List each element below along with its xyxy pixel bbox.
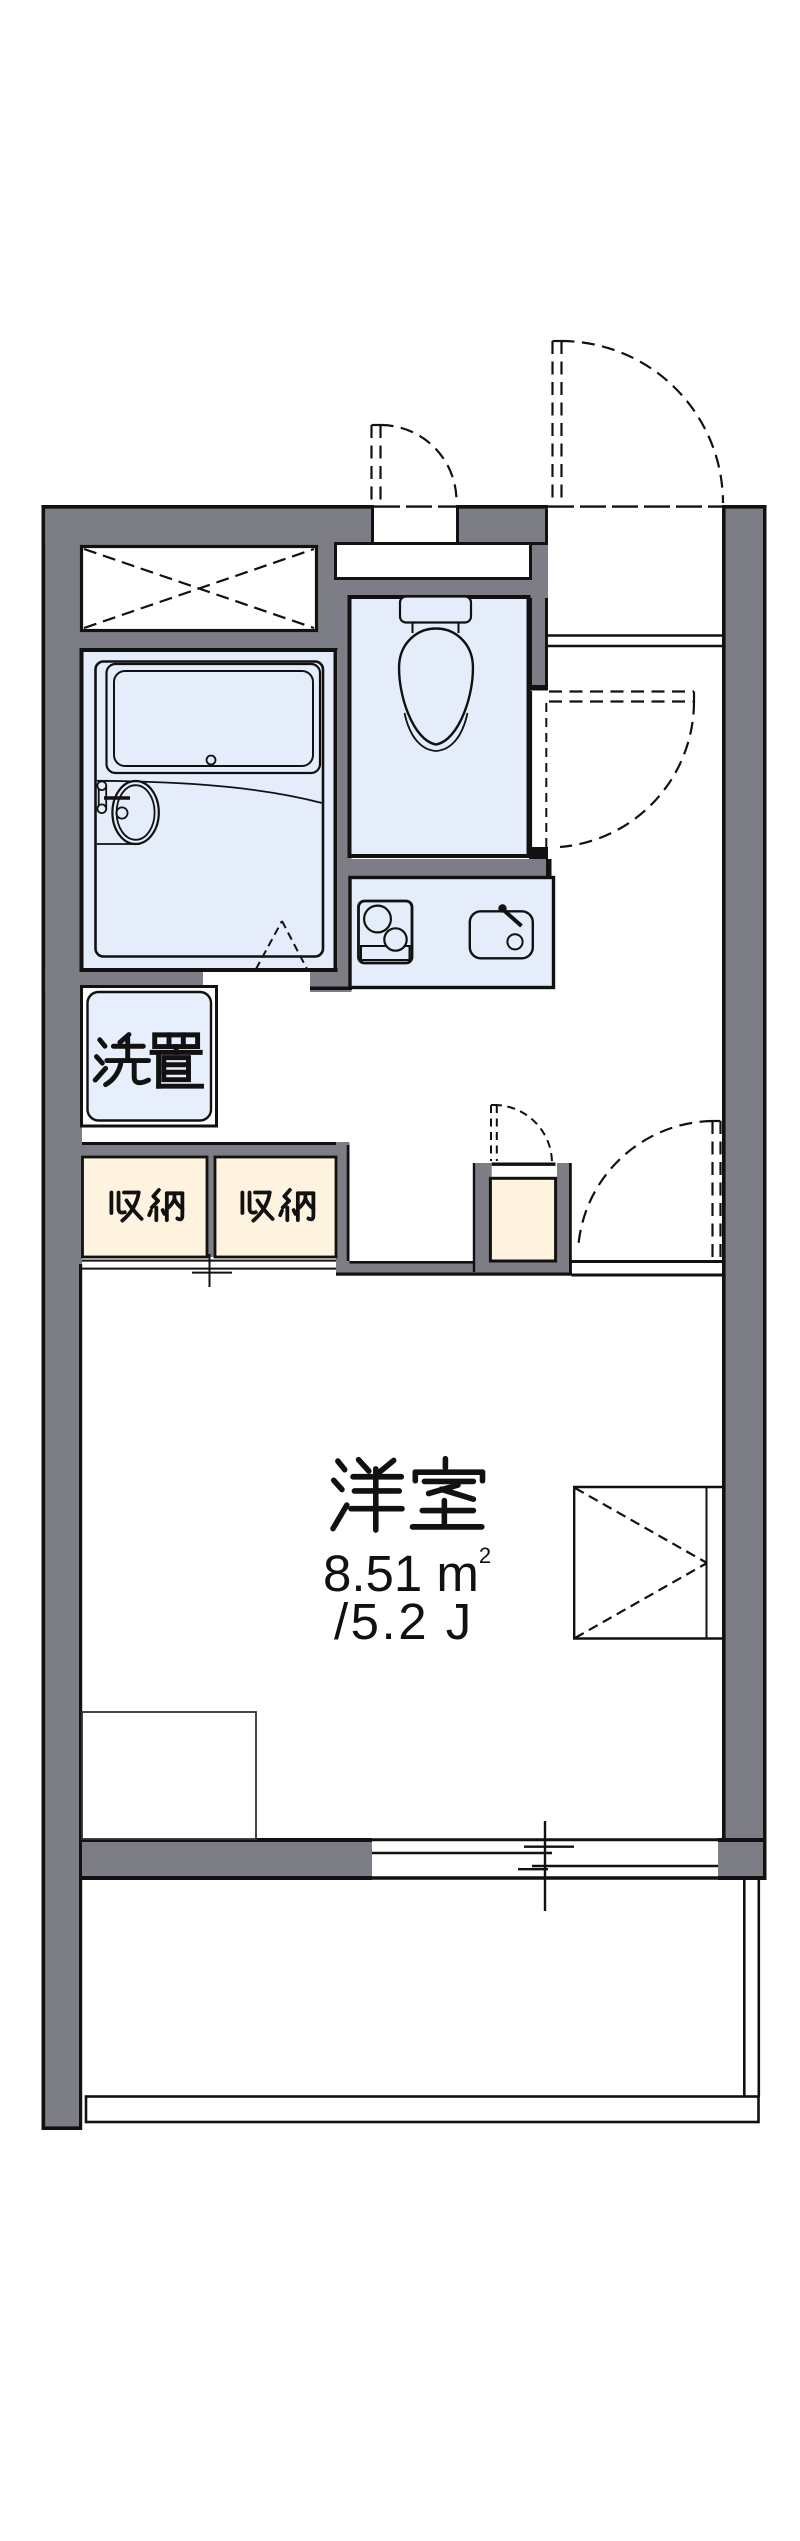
svg-text:/5.2 J: /5.2 J	[334, 1593, 474, 1650]
